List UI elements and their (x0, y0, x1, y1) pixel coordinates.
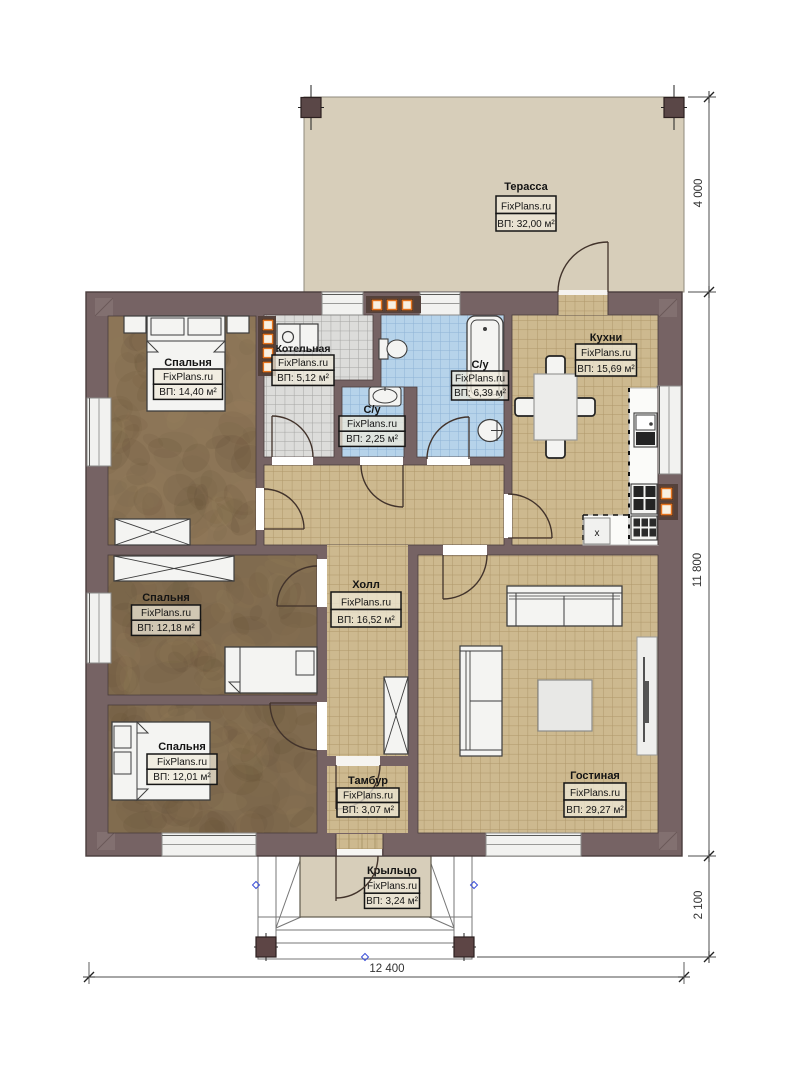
svg-text:FixPlans.ru: FixPlans.ru (278, 358, 328, 369)
svg-text:2 100: 2 100 (693, 891, 705, 920)
svg-text:ВП: 5,12 м²: ВП: 5,12 м² (277, 373, 330, 384)
svg-text:Гостиная: Гостиная (570, 770, 620, 782)
svg-text:11 800: 11 800 (692, 553, 704, 587)
svg-text:x: x (595, 528, 600, 539)
svg-text:FixPlans.ru: FixPlans.ru (341, 597, 391, 608)
svg-text:Спальня: Спальня (142, 592, 190, 604)
svg-text:ВП: 2,25 м²: ВП: 2,25 м² (346, 434, 399, 445)
svg-text:ВП: 6,39 м²: ВП: 6,39 м² (454, 388, 507, 399)
svg-text:Крыльцо: Крыльцо (367, 865, 417, 877)
svg-text:ВП: 3,07 м²: ВП: 3,07 м² (342, 805, 395, 816)
svg-text:FixPlans.ru: FixPlans.ru (581, 348, 631, 359)
svg-text:ВП: 14,40 м²: ВП: 14,40 м² (159, 387, 217, 398)
svg-text:FixPlans.ru: FixPlans.ru (157, 757, 207, 768)
svg-text:С/у: С/у (471, 359, 489, 371)
svg-text:Холл: Холл (352, 579, 380, 591)
svg-text:FixPlans.ru: FixPlans.ru (343, 790, 393, 801)
svg-text:Тамбур: Тамбур (348, 775, 388, 787)
svg-text:Спальня: Спальня (164, 357, 212, 369)
svg-text:FixPlans.ru: FixPlans.ru (367, 881, 417, 892)
svg-text:FixPlans.ru: FixPlans.ru (501, 201, 551, 212)
svg-text:ВП: 15,69 м²: ВП: 15,69 м² (577, 364, 635, 375)
svg-text:4 000: 4 000 (693, 179, 705, 208)
svg-text:Кухни: Кухни (590, 332, 623, 344)
svg-text:12 400: 12 400 (369, 963, 404, 975)
svg-text:Спальня: Спальня (158, 741, 206, 753)
svg-text:FixPlans.ru: FixPlans.ru (347, 419, 397, 430)
svg-text:С/у: С/у (363, 404, 381, 416)
svg-text:FixPlans.ru: FixPlans.ru (570, 788, 620, 799)
svg-text:ВП: 16,52 м²: ВП: 16,52 м² (337, 615, 395, 626)
svg-text:ВП: 12,18 м²: ВП: 12,18 м² (137, 623, 195, 634)
svg-text:FixPlans.ru: FixPlans.ru (163, 372, 213, 383)
svg-text:Котельная: Котельная (276, 343, 331, 355)
svg-text:ВП: 12,01 м²: ВП: 12,01 м² (153, 772, 211, 783)
svg-text:ВП: 3,24 м²: ВП: 3,24 м² (366, 896, 419, 907)
svg-text:Терасса: Терасса (504, 181, 548, 193)
svg-text:ВП: 29,27 м²: ВП: 29,27 м² (566, 805, 624, 816)
svg-text:ВП: 32,00 м²: ВП: 32,00 м² (497, 219, 555, 230)
svg-text:FixPlans.ru: FixPlans.ru (455, 373, 505, 384)
svg-text:FixPlans.ru: FixPlans.ru (141, 608, 191, 619)
